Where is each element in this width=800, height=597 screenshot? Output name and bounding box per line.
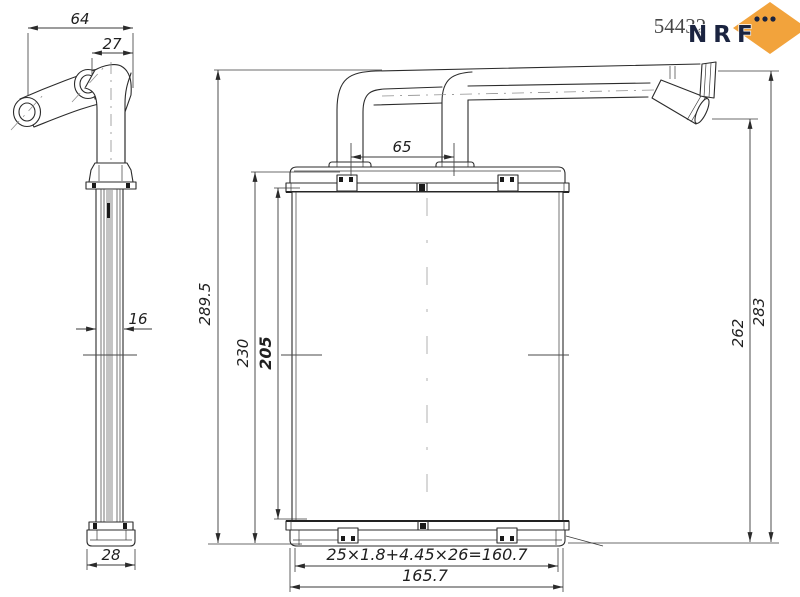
nrf-logo: NRF <box>688 2 800 54</box>
logo-text: NRF <box>688 22 759 48</box>
dim-core-height: 205 <box>256 336 275 369</box>
dim-pipe-top-height: 283 <box>750 298 768 327</box>
dim-core-depth: 16 <box>128 310 147 328</box>
dim-tube-formula: 25×1.8+4.45×26=160.7 <box>326 545 528 564</box>
dim-tank-depth: 28 <box>101 546 120 564</box>
side-view-pipes <box>11 62 131 172</box>
mounting-tab <box>497 528 517 543</box>
dim-overall-height: 289.5 <box>196 283 214 326</box>
front-view: 65 289.5 230 205 262 283 25×1.8+4.45×26=… <box>196 62 779 592</box>
mounting-tab <box>338 528 358 543</box>
front-view-bottom-tank <box>286 521 603 546</box>
side-view-top-tank <box>86 163 136 189</box>
side-view-bottom-tank <box>87 522 135 546</box>
side-view-core <box>83 189 137 522</box>
dim-core-width: 165.7 <box>402 566 449 585</box>
technical-drawing: 64 27 16 28 <box>0 0 800 597</box>
dim-port-spacing: 65 <box>392 138 411 156</box>
mounting-tab <box>337 175 357 191</box>
side-view: 64 27 16 28 <box>11 10 152 570</box>
dim-connector-height: 262 <box>729 319 747 348</box>
front-view-core <box>281 192 569 521</box>
front-view-top-tank <box>286 167 569 192</box>
logo-dots-icon <box>754 16 775 21</box>
drawing-svg: 64 27 16 28 <box>0 0 800 597</box>
dim-pipe-span: 64 <box>70 10 89 28</box>
mounting-tab <box>498 175 518 191</box>
title-block: 54432 NRF <box>654 2 800 54</box>
dim-tank-to-tank-height: 230 <box>234 339 252 368</box>
dim-pipe-offset: 27 <box>102 35 122 53</box>
